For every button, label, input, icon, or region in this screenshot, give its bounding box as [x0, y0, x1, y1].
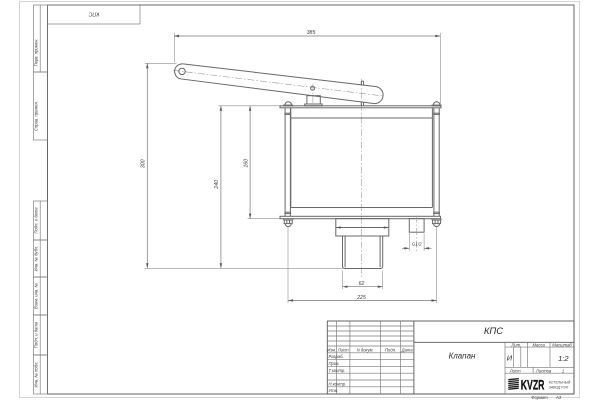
svg-text:Клапан: Клапан: [449, 352, 476, 361]
svg-text:Подп.: Подп.: [385, 347, 396, 352]
svg-text:КОТЕЛЬНЫЙ: КОТЕЛЬНЫЙ: [549, 381, 571, 385]
svg-text:Формат: Формат: [531, 395, 548, 400]
svg-text:Инв. № подл.: Инв. № подл.: [33, 362, 38, 388]
svg-text:И: И: [507, 354, 513, 363]
svg-text:KVZR: KVZR: [521, 378, 545, 393]
svg-text:КПС: КПС: [88, 11, 99, 17]
svg-text:N докум.: N докум.: [357, 347, 374, 352]
svg-text:Инв. № дубл.: Инв. № дубл.: [33, 246, 38, 272]
svg-text:Изм.: Изм.: [327, 347, 336, 352]
svg-text:Лист: Лист: [337, 347, 349, 352]
svg-text:Лист: Лист: [509, 368, 521, 373]
svg-text:Н.контр.: Н.контр.: [329, 381, 347, 386]
svg-text:62: 62: [359, 281, 365, 287]
svg-text:225: 225: [356, 295, 366, 301]
svg-text:Утв.: Утв.: [329, 388, 339, 393]
svg-text:Подп. и дата: Подп. и дата: [33, 321, 38, 348]
svg-text:Пров.: Пров.: [329, 361, 340, 366]
svg-text:240: 240: [214, 180, 220, 190]
svg-text:Подп. и дата: Подп. и дата: [33, 207, 38, 234]
svg-text:Лит.: Лит.: [510, 342, 521, 347]
svg-text:Т.контр.: Т.контр.: [329, 368, 346, 373]
svg-text:Разраб.: Разраб.: [329, 354, 344, 359]
svg-text:Масштаб: Масштаб: [552, 342, 572, 347]
svg-text:Перв. примен.: Перв. примен.: [33, 39, 38, 67]
svg-text:Листов: Листов: [535, 368, 552, 373]
svg-text:300: 300: [141, 159, 147, 168]
svg-text:Взам. инв. №: Взам. инв. №: [33, 283, 38, 309]
svg-text:385: 385: [307, 30, 316, 36]
svg-text:A3: A3: [555, 395, 562, 400]
svg-text:1: 1: [562, 368, 564, 373]
svg-text:ЗАВОД РЭП: ЗАВОД РЭП: [549, 386, 569, 390]
svg-text:КПС: КПС: [484, 326, 503, 337]
svg-text:1:2: 1:2: [558, 354, 569, 363]
svg-text:160: 160: [243, 159, 249, 168]
svg-text:G1/2: G1/2: [412, 241, 422, 246]
svg-text:Дата: Дата: [401, 347, 414, 352]
svg-text:Масса: Масса: [533, 342, 546, 347]
svg-text:Справ. примен.: Справ. примен.: [33, 101, 38, 131]
